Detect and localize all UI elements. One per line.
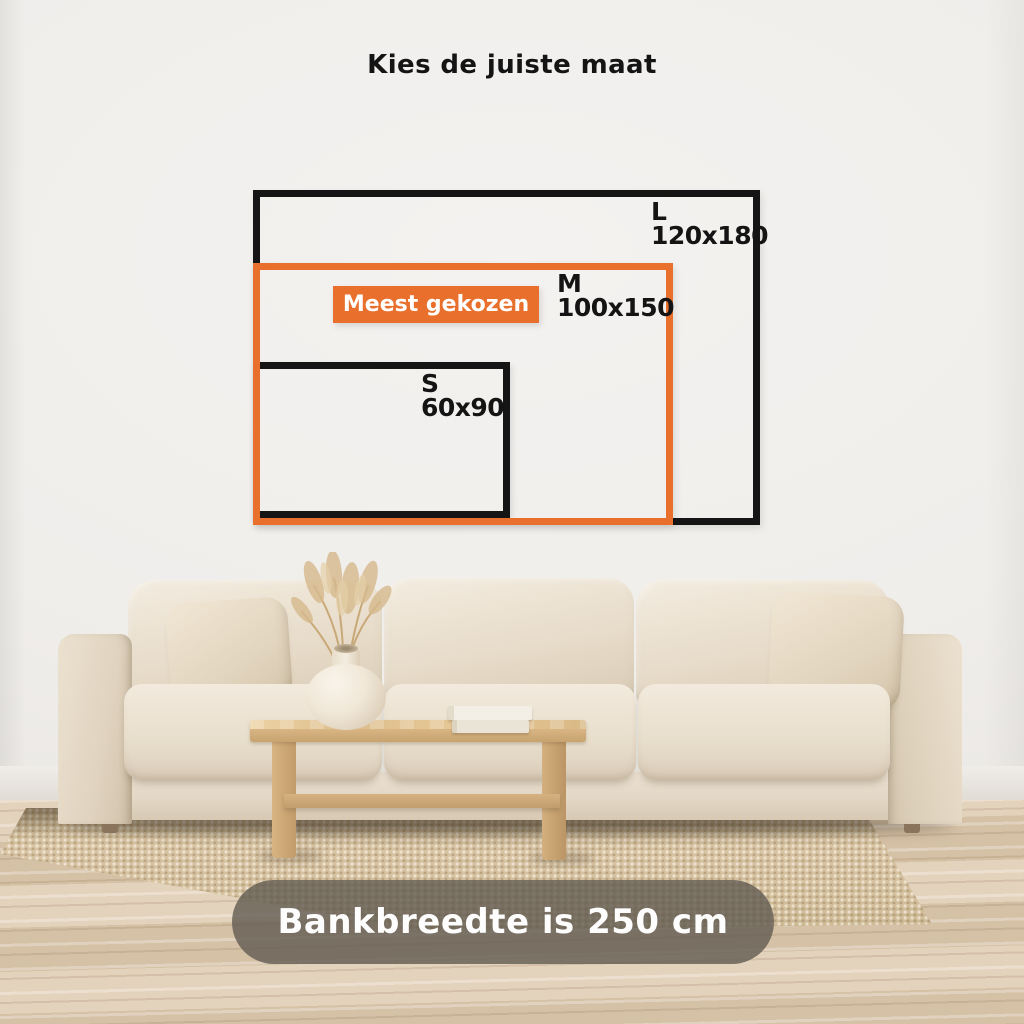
size-guide-scene: L 120x180 M 100x150 S 60x90 Meest gekoze… (0, 0, 1024, 1024)
sofa-seat-cushion (638, 684, 890, 780)
page-title: Kies de juiste maat (0, 50, 1024, 80)
size-dimensions-s: 60x90 (421, 396, 504, 420)
vase (306, 664, 386, 730)
sofa-width-banner: Bankbreedte is 250 cm (232, 880, 774, 964)
vase-opening (334, 644, 358, 653)
sofa-arm-left (58, 634, 132, 824)
size-label-l: L 120x180 (651, 200, 768, 248)
size-label-m: M 100x150 (557, 272, 674, 320)
table-top-edge (250, 729, 586, 742)
table-top (250, 720, 586, 742)
size-label-s: S 60x90 (421, 372, 504, 420)
book (448, 706, 532, 720)
book (452, 720, 529, 733)
size-dimensions-m: 100x150 (557, 296, 674, 320)
most-chosen-badge: Meest gekozen (333, 286, 539, 323)
table-top-surface (250, 720, 586, 729)
table-stretcher (284, 794, 560, 808)
size-dimensions-l: 120x180 (651, 224, 768, 248)
